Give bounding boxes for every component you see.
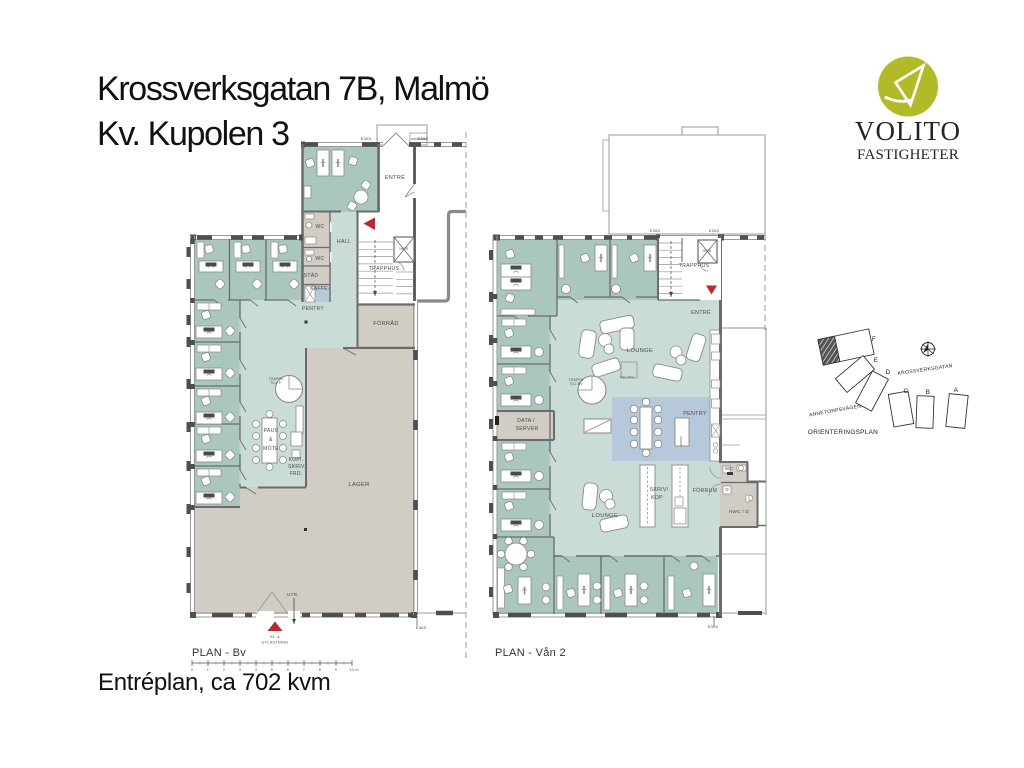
svg-text:KAFFE-: KAFFE- bbox=[310, 286, 330, 292]
svg-text:SKRIV/: SKRIV/ bbox=[650, 487, 669, 493]
svg-text:6: 6 bbox=[287, 668, 289, 672]
svg-text:WC: WC bbox=[725, 466, 734, 471]
svg-text:WC: WC bbox=[316, 224, 325, 230]
svg-text:PLAN - Vån 2: PLAN - Vån 2 bbox=[495, 647, 566, 659]
svg-text:E360: E360 bbox=[416, 625, 427, 630]
svg-text:HISS: HISS bbox=[399, 247, 409, 251]
svg-text:FÖRRÅD: FÖRRÅD bbox=[373, 320, 398, 327]
svg-text:PAUS: PAUS bbox=[264, 428, 279, 434]
svg-text:IN- &: IN- & bbox=[270, 635, 280, 639]
svg-text:SERVER: SERVER bbox=[515, 426, 538, 432]
svg-text:KOP: KOP bbox=[651, 495, 663, 501]
svg-text:E360: E360 bbox=[418, 136, 429, 141]
svg-text:4: 4 bbox=[255, 668, 257, 672]
svg-text:KOPI.: KOPI. bbox=[289, 457, 304, 463]
svg-text:E360: E360 bbox=[709, 228, 720, 233]
svg-text:8: 8 bbox=[319, 668, 321, 672]
svg-text:ENTRÉ: ENTRÉ bbox=[385, 174, 405, 181]
svg-text:LOUNGE: LOUNGE bbox=[627, 348, 653, 354]
svg-text:FÖRRUM: FÖRRUM bbox=[693, 487, 718, 494]
svg-text:MÖTE: MÖTE bbox=[263, 445, 279, 452]
svg-text:TILL P.: TILL P. bbox=[270, 381, 282, 385]
svg-text:0: 0 bbox=[191, 668, 193, 672]
svg-text:HALL: HALL bbox=[337, 239, 351, 245]
svg-text:ORIENTERINGSPLAN: ORIENTERINGSPLAN bbox=[808, 429, 878, 436]
svg-text:E360: E360 bbox=[708, 624, 719, 629]
svg-text:LOUNGE: LOUNGE bbox=[592, 513, 618, 519]
svg-text:LAGER: LAGER bbox=[348, 482, 369, 488]
svg-text:VOLITO: VOLITO bbox=[855, 116, 961, 146]
svg-text:D: D bbox=[886, 369, 891, 376]
svg-text:TILL BV: TILL BV bbox=[569, 382, 583, 386]
svg-text:9: 9 bbox=[335, 668, 337, 672]
svg-text:1: 1 bbox=[207, 668, 209, 672]
svg-text:SKRIV.: SKRIV. bbox=[288, 464, 306, 470]
svg-text:TRAPPHUS: TRAPPHUS bbox=[679, 263, 710, 269]
svg-text:ANNETORPSVÄGEN: ANNETORPSVÄGEN bbox=[809, 402, 862, 418]
svg-text:UTR.: UTR. bbox=[287, 592, 299, 597]
svg-text:A: A bbox=[954, 387, 959, 394]
svg-text:KOKSO: KOKSO bbox=[679, 436, 683, 445]
svg-text:SALONG: SALONG bbox=[620, 375, 635, 379]
svg-text:FRD.: FRD. bbox=[290, 471, 303, 477]
svg-text:HISS: HISS bbox=[702, 249, 712, 253]
svg-text:E: E bbox=[874, 357, 879, 364]
svg-text:&: & bbox=[269, 437, 273, 443]
svg-text:C: C bbox=[904, 388, 909, 395]
svg-text:2: 2 bbox=[223, 668, 225, 672]
svg-text:UTLASTNING: UTLASTNING bbox=[261, 641, 288, 645]
svg-text:E360: E360 bbox=[650, 228, 661, 233]
svg-text:DATA /: DATA / bbox=[517, 418, 535, 424]
svg-text:TRAPPHUS: TRAPPHUS bbox=[369, 266, 400, 272]
svg-text:E360: E360 bbox=[361, 136, 372, 141]
svg-text:PENTRY: PENTRY bbox=[683, 411, 707, 417]
svg-text:F: F bbox=[872, 336, 876, 343]
svg-text:10 m: 10 m bbox=[349, 668, 359, 672]
svg-text:ENTRÉ: ENTRÉ bbox=[691, 309, 711, 316]
svg-text:5: 5 bbox=[271, 668, 273, 672]
svg-text:HWC / D: HWC / D bbox=[729, 509, 750, 514]
svg-text:PLAN - Bv: PLAN - Bv bbox=[192, 647, 246, 659]
svg-text:7: 7 bbox=[303, 668, 305, 672]
svg-text:STÄD: STÄD bbox=[304, 272, 319, 279]
svg-text:3: 3 bbox=[239, 668, 241, 672]
svg-text:B: B bbox=[926, 389, 931, 396]
svg-text:WC: WC bbox=[316, 256, 325, 262]
svg-text:PENTRY: PENTRY bbox=[302, 306, 324, 312]
svg-text:FASTIGHETER: FASTIGHETER bbox=[857, 147, 959, 163]
svg-text:KROSSVERKSGATAN: KROSSVERKSGATAN bbox=[897, 363, 953, 377]
